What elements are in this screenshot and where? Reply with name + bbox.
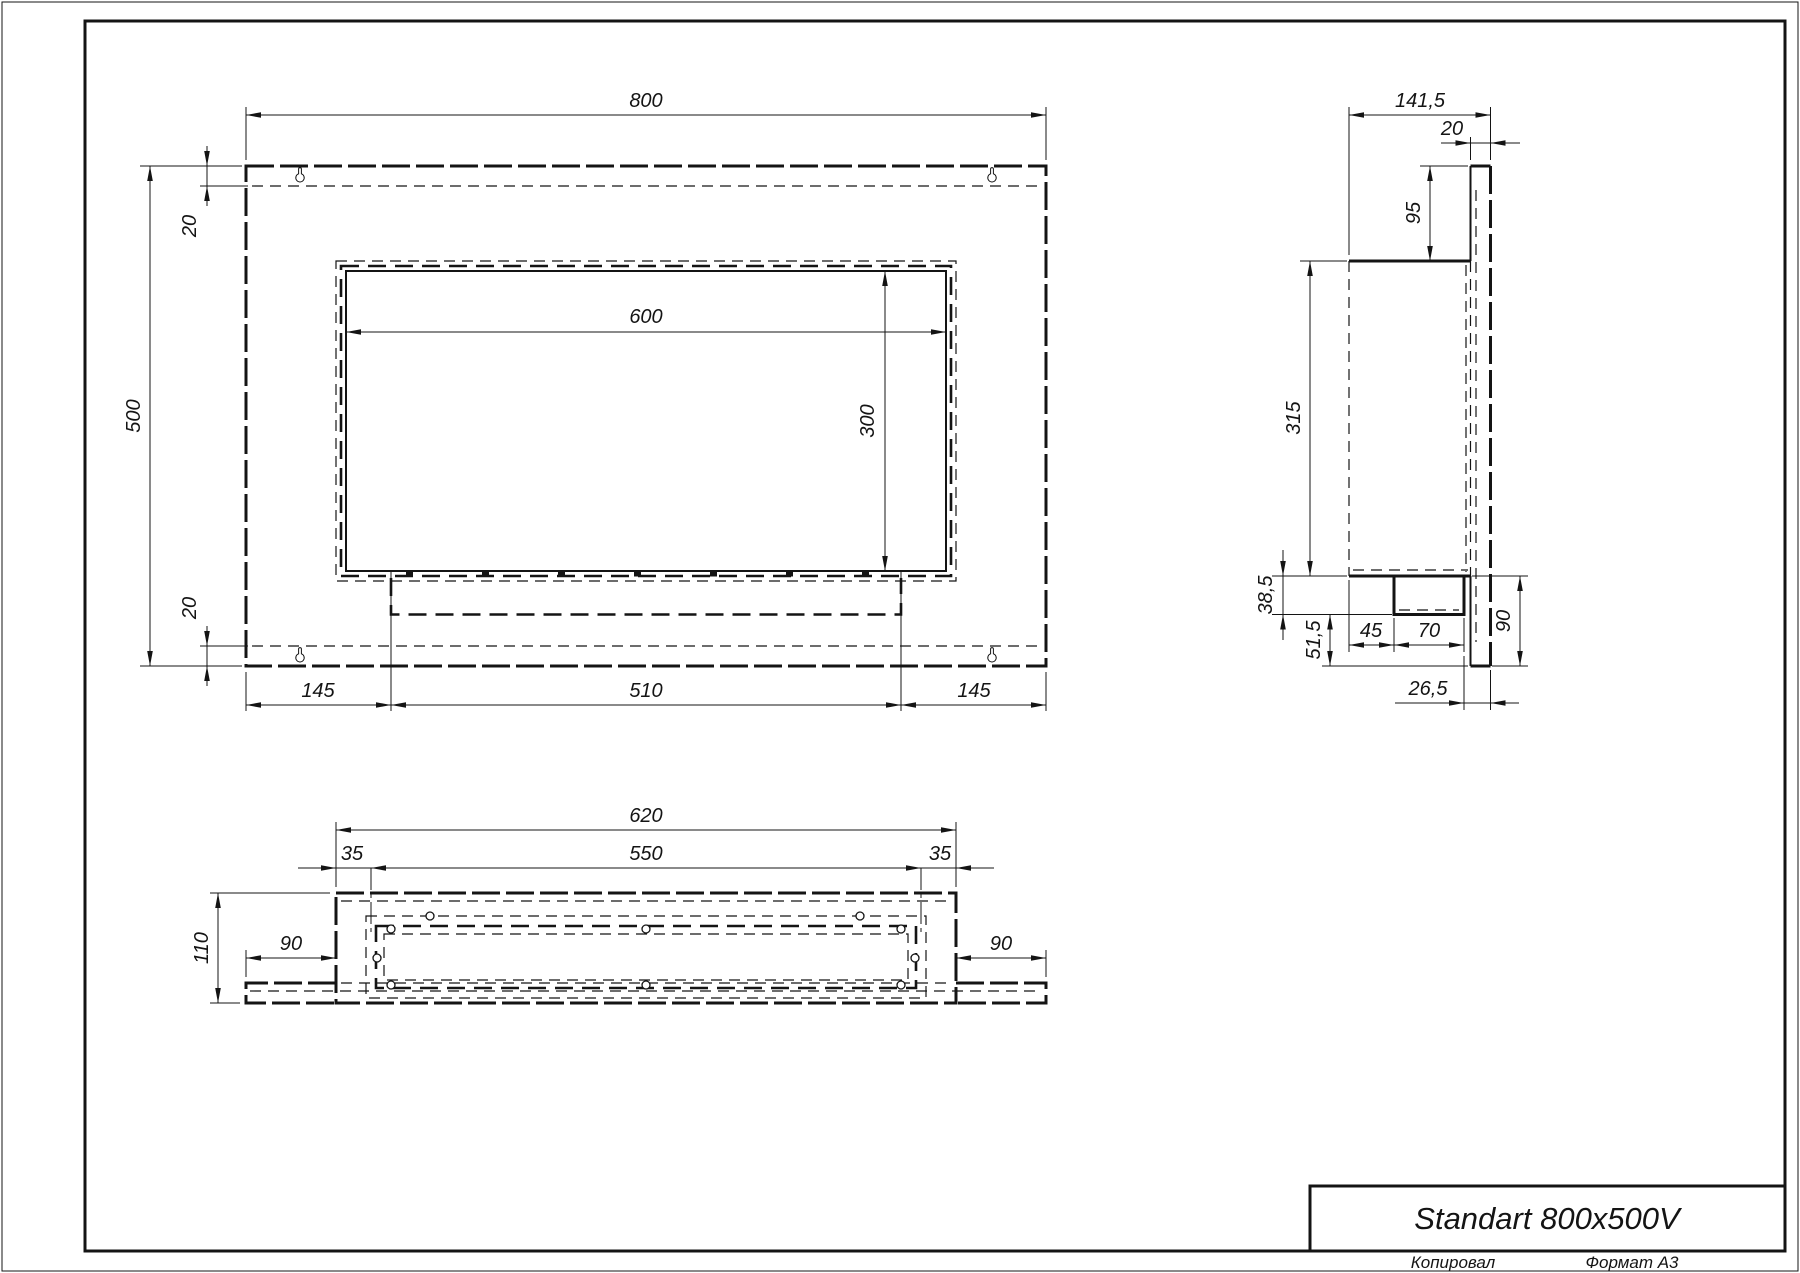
sheet-footer: Копировал Формат А3 xyxy=(1411,1253,1679,1272)
dim-side-tray-drop: 38,5 xyxy=(1255,575,1277,615)
dim-bottom-body-width: 620 xyxy=(629,805,662,827)
dim-side-tray-front-offset: 45 xyxy=(1360,620,1383,642)
dim-bottom-tray-width: 550 xyxy=(629,843,662,865)
mounting-holes xyxy=(373,912,919,989)
keyhole-slot-icon xyxy=(296,648,304,662)
dim-front-top-fold: 20 xyxy=(179,215,201,238)
dim-front-right-offset: 145 xyxy=(957,680,991,702)
tray-tabs xyxy=(406,572,869,577)
format-label: Формат А3 xyxy=(1585,1253,1679,1272)
keyhole-slot-icon xyxy=(988,648,996,662)
mounting-hole xyxy=(642,925,650,933)
bottom-flange-right xyxy=(956,983,1046,1003)
copied-by-label: Копировал xyxy=(1411,1253,1496,1272)
mounting-hole xyxy=(856,912,864,920)
product-title: Standart 800x500V xyxy=(1414,1201,1683,1236)
dim-bottom-flange-right: 90 xyxy=(990,933,1012,955)
sheet-border xyxy=(2,2,1798,1271)
front-panel-outline xyxy=(246,166,1046,666)
dim-side-panel-thickness: 20 xyxy=(1440,118,1463,140)
dim-front-overall-width: 800 xyxy=(629,90,662,112)
dim-front-tray-width: 510 xyxy=(629,680,662,702)
mounting-hole xyxy=(387,981,395,989)
drawing-canvas: 800 500 20 20 600 300 145 510 145 xyxy=(0,0,1800,1273)
dim-side-bottom-clearance: 51,5 xyxy=(1303,620,1325,660)
dim-side-overall-depth: 141,5 xyxy=(1395,90,1446,112)
mounting-hole xyxy=(897,981,905,989)
dim-side-body-height: 315 xyxy=(1283,400,1305,434)
dim-front-left-offset: 145 xyxy=(301,680,335,702)
dim-front-bottom-fold: 20 xyxy=(179,597,201,620)
bottom-tray-hidden xyxy=(376,926,916,988)
mounting-hole xyxy=(373,954,381,962)
mounting-hole xyxy=(642,981,650,989)
front-view: 800 500 20 20 600 300 145 510 145 xyxy=(123,90,1046,711)
mounting-hole xyxy=(911,954,919,962)
dim-bottom-tray-margin-right: 35 xyxy=(929,843,952,865)
dim-front-opening-width: 600 xyxy=(629,306,662,328)
bottom-view: 620 550 35 35 110 90 90 xyxy=(191,805,1046,1003)
dim-side-tray-depth: 70 xyxy=(1418,620,1440,642)
title-block: Standart 800x500V xyxy=(1310,1186,1785,1251)
dim-side-top-offset: 95 xyxy=(1403,201,1425,224)
dim-front-opening-height: 300 xyxy=(857,404,879,437)
side-tray xyxy=(1394,576,1464,615)
front-tray-hidden xyxy=(391,578,901,615)
bottom-flange-left xyxy=(246,983,336,1003)
dim-front-overall-height: 500 xyxy=(123,399,145,432)
drawing-sheet: 800 500 20 20 600 300 145 510 145 xyxy=(0,0,1800,1273)
dim-bottom-body-depth: 110 xyxy=(191,932,213,964)
mounting-hole xyxy=(387,925,395,933)
dim-side-tray-rear-gap: 26,5 xyxy=(1408,678,1449,700)
dim-bottom-flange-left: 90 xyxy=(280,933,302,955)
mounting-hole xyxy=(426,912,434,920)
keyhole-slot-icon xyxy=(988,168,996,182)
keyhole-slot-icon xyxy=(296,168,304,182)
dim-side-panel-bottom-extension: 90 xyxy=(1493,610,1515,632)
dim-bottom-tray-margin-left: 35 xyxy=(341,843,364,865)
mounting-hole xyxy=(897,925,905,933)
bottom-tray-inner-hidden xyxy=(384,934,908,980)
side-view: 141,5 20 95 315 38,5 51,5 45 70 xyxy=(1255,90,1528,710)
